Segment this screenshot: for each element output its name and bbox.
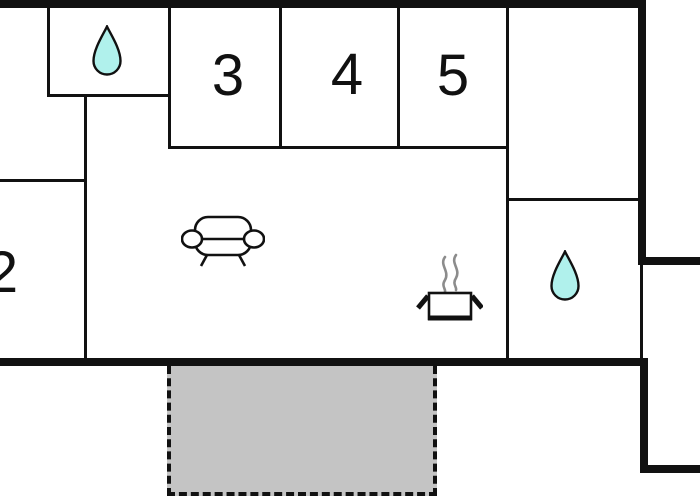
- wall-room5-right: [506, 8, 509, 358]
- room-label-5: 5: [437, 47, 469, 105]
- wall-outer-right-lower: [640, 358, 648, 473]
- wall-right-opening-top: [641, 257, 700, 265]
- wall-room3-left: [168, 8, 171, 149]
- room-label-2: 2: [0, 244, 18, 302]
- wall-living-left: [84, 94, 87, 358]
- wall-room4-room5-divider: [397, 8, 400, 146]
- floor-plan: 2 3 4 5: [0, 0, 700, 500]
- cooking-pot-icon: [415, 253, 483, 323]
- room-label-4: 4: [331, 46, 363, 104]
- sofa-icon: [181, 215, 265, 267]
- wall-bath1-left: [47, 8, 50, 97]
- water-drop-icon: [92, 25, 122, 77]
- wall-bath1-bottom: [47, 94, 171, 97]
- water-drop-icon: [550, 250, 580, 302]
- wall-outer-right-upper: [638, 0, 646, 265]
- terrace-dashed-area: [167, 366, 437, 496]
- wall-bath2-right: [640, 265, 643, 358]
- wall-outer-bottom: [0, 358, 648, 366]
- wall-bedrooms-bottom: [168, 146, 509, 149]
- wall-room3-room4-divider: [279, 8, 282, 146]
- wall-room2-top: [0, 179, 87, 182]
- wall-outer-top: [0, 0, 646, 8]
- wall-right-opening-bottom: [641, 465, 700, 473]
- room-label-3: 3: [212, 47, 244, 105]
- wall-bath2-top: [506, 198, 643, 201]
